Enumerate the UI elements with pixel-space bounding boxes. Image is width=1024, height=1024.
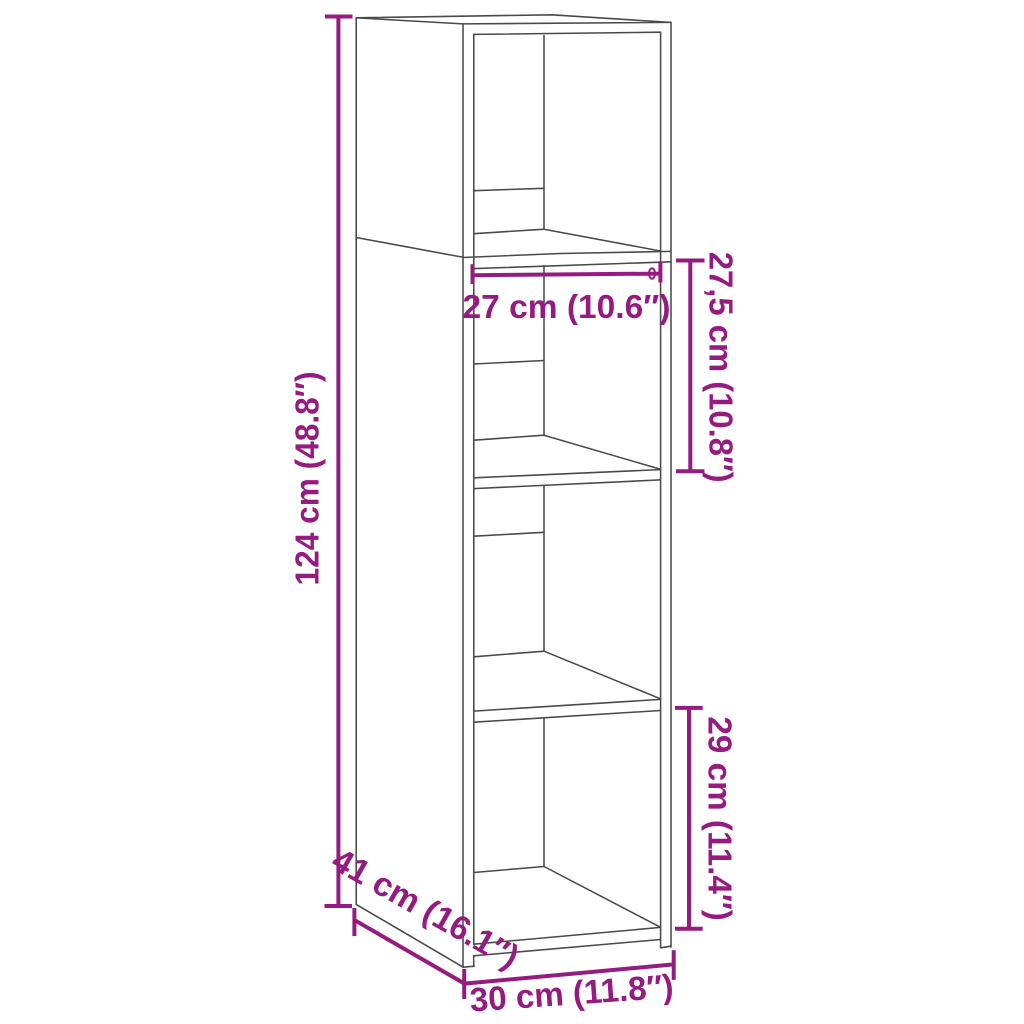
svg-text:124 cm (48.8″): 124 cm (48.8″) (289, 372, 327, 586)
svg-text:29 cm (11.4″): 29 cm (11.4″) (701, 716, 739, 921)
svg-text:27,5 cm (10.8″): 27,5 cm (10.8″) (702, 252, 740, 483)
svg-text:27 cm (10.6″): 27 cm (10.6″) (463, 288, 671, 326)
